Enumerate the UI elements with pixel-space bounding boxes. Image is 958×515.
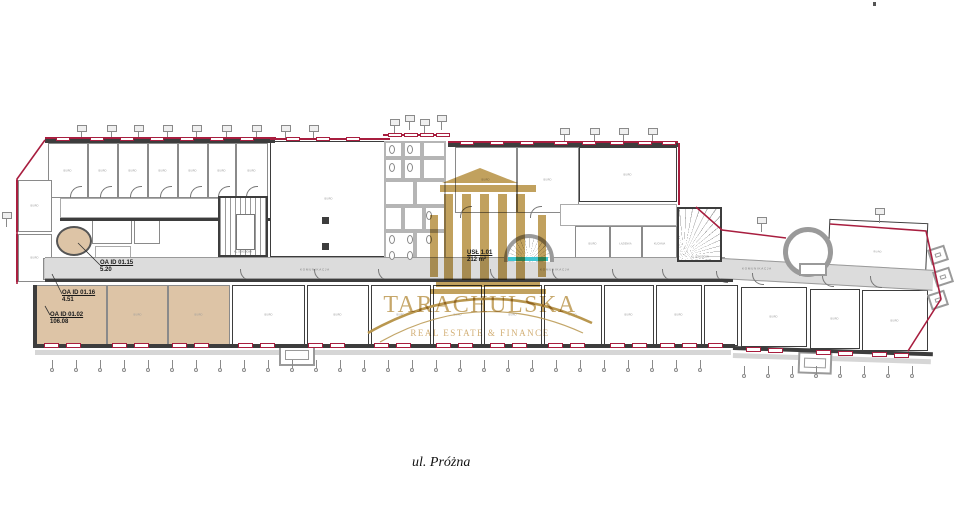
dimension-tick	[148, 360, 149, 368]
dimension-flag	[252, 125, 262, 132]
window-opening	[374, 343, 389, 348]
window-opening	[632, 343, 647, 348]
staircase-left: KL. SCHODOWA	[218, 196, 268, 257]
dimension-tick	[436, 360, 437, 368]
room: BIURO	[604, 285, 654, 345]
dimension-tick	[388, 360, 389, 368]
toilet-fixture	[389, 145, 395, 154]
dimension-flag	[107, 125, 117, 132]
dimension-tick	[340, 360, 341, 368]
room	[403, 206, 424, 231]
room: BIURO	[544, 285, 602, 345]
room: BIURO	[484, 285, 542, 345]
bay-window-inner	[935, 297, 942, 303]
annotation-id: OA ID 01.16	[62, 290, 95, 297]
bay-window-inner	[804, 358, 826, 369]
window-opening	[436, 343, 451, 348]
stair-landing	[236, 214, 255, 250]
toilet-fixture	[389, 251, 395, 260]
dimension-tick	[220, 360, 221, 368]
dimension-tick	[700, 360, 701, 368]
area-annotation: OA ID 01.164.51	[62, 290, 95, 304]
toilet-fixture	[407, 235, 413, 244]
dimension-tick	[628, 360, 629, 368]
dimension-tick	[556, 360, 557, 368]
dimension-tick	[364, 360, 365, 368]
room	[384, 180, 415, 206]
room	[384, 206, 403, 231]
dimension-flag	[222, 125, 232, 132]
window-opening	[286, 137, 300, 141]
window-opening	[44, 343, 59, 348]
room: BIURO	[656, 285, 702, 345]
room: BIURO	[168, 285, 230, 345]
room-label: BIURO	[891, 319, 899, 322]
window-opening	[610, 141, 624, 145]
room: BIURO	[48, 143, 88, 198]
window-opening	[520, 141, 534, 145]
dimension-tick	[580, 360, 581, 368]
bay-window	[927, 245, 949, 266]
window-opening	[872, 352, 887, 357]
dimension-flag	[757, 217, 767, 224]
room: BIURO	[433, 285, 482, 345]
window-opening	[894, 353, 909, 358]
annotation-id: OA ID 01.15	[100, 260, 133, 267]
room-label: BIURO	[453, 314, 461, 317]
window-opening	[746, 347, 761, 352]
room-label: KUCHNIA	[654, 243, 665, 246]
street-label: ul. Próżna	[412, 455, 470, 471]
window-opening	[610, 343, 625, 348]
window-opening	[120, 137, 134, 141]
area-annotation: USŁ 1.01212 m²	[467, 250, 492, 264]
dimension-tick	[676, 360, 677, 368]
annotation-id: USŁ 1.01	[467, 250, 492, 257]
annotation-area: 5.20	[100, 267, 133, 274]
room-label: BIURO	[334, 314, 342, 317]
window-opening	[316, 137, 330, 141]
window-opening	[112, 343, 127, 348]
toilet-fixture	[426, 235, 432, 244]
dimension-tick	[124, 360, 125, 368]
toilet-fixture	[426, 211, 432, 220]
room-label: BIURO	[397, 314, 405, 317]
structural-column	[322, 243, 329, 250]
window-opening	[150, 137, 164, 141]
room-label: BIURO	[99, 169, 107, 172]
room-label: BIURO	[831, 318, 839, 321]
room: BIURO	[741, 287, 807, 347]
window-opening	[308, 343, 323, 348]
room	[92, 218, 132, 244]
dimension-tick	[816, 366, 817, 374]
room-label: BIURO	[64, 169, 72, 172]
room-label: ŁAZIENKA	[620, 243, 632, 246]
annotation-area: 212 m²	[467, 257, 492, 264]
window-opening	[66, 343, 81, 348]
window-opening	[172, 343, 187, 348]
room: BIURO	[18, 180, 52, 232]
dimension-flag	[405, 115, 415, 122]
room-label: BIURO	[264, 314, 272, 317]
dimension-flag	[77, 125, 87, 132]
dimension-tick	[100, 360, 101, 368]
window-opening	[660, 343, 675, 348]
window-opening	[330, 343, 345, 348]
dimension-tick	[76, 360, 77, 368]
window-opening	[682, 343, 697, 348]
corridor-label: KOMUNIKACJA	[300, 269, 330, 272]
wall-left-edge	[33, 285, 37, 345]
room: BIURO	[107, 285, 168, 345]
room: BIURO	[862, 290, 928, 351]
room-label: BIURO	[770, 316, 778, 319]
dimension-tick	[292, 360, 293, 368]
dimension-flag	[590, 128, 600, 135]
bay-window	[932, 267, 954, 288]
dimension-tick	[532, 360, 533, 368]
window-opening	[210, 137, 224, 141]
window-opening	[240, 137, 254, 141]
window-opening	[134, 343, 149, 348]
window-opening	[554, 141, 568, 145]
room-label: BIURO	[625, 314, 633, 317]
oval-room	[56, 226, 92, 256]
toilet-fixture	[407, 251, 413, 260]
window-opening	[512, 343, 527, 348]
dimension-tick	[888, 366, 889, 374]
dimension-flag	[420, 119, 430, 126]
room-label: BIURO	[218, 169, 226, 172]
window-opening	[662, 141, 676, 145]
room-label: BIURO	[31, 205, 39, 208]
window-opening	[570, 343, 585, 348]
room: BIURO	[270, 141, 388, 257]
bay-window-inner	[940, 274, 947, 280]
dimension-flag	[2, 212, 12, 219]
window-opening	[238, 343, 253, 348]
toilet-fixture	[407, 163, 413, 172]
dimension-tick	[840, 366, 841, 374]
toilet-fixture	[407, 145, 413, 154]
room	[704, 285, 738, 346]
dimension-tick	[196, 360, 197, 368]
window-opening	[768, 348, 783, 353]
dimension-tick	[268, 360, 269, 368]
room-label: BIURO	[129, 169, 137, 172]
room: BIURO	[810, 289, 860, 349]
teal-strip	[508, 257, 548, 261]
bay-window	[927, 290, 949, 311]
dimension-tick	[768, 366, 769, 374]
room-label: BIURO	[31, 257, 39, 260]
staircase-right: KL. SCHODOWA	[677, 207, 722, 262]
room-label: BIURO	[873, 251, 881, 254]
floor-plan: KL. SCHODOWA KL. SCHODOWA BIUROBIUROBIUR…	[0, 0, 958, 515]
bay-window-inner	[285, 350, 309, 360]
room-label: BIURO	[624, 173, 632, 176]
dimension-flag	[560, 128, 570, 135]
dimension-flag	[437, 115, 447, 122]
room	[422, 158, 446, 180]
dimension-tick	[52, 360, 53, 368]
structural-column	[322, 217, 329, 224]
dimension-tick	[316, 360, 317, 368]
window-opening	[420, 133, 434, 137]
window-opening	[56, 137, 70, 141]
room-label: BIURO	[569, 314, 577, 317]
room-label: BIURO	[509, 314, 517, 317]
window-opening	[638, 141, 652, 145]
window-opening	[838, 351, 853, 356]
room-label: BIURO	[675, 314, 683, 317]
area-annotation: OA ID 01.155.20	[100, 260, 133, 274]
dimension-tick	[604, 360, 605, 368]
room: BIURO	[232, 285, 305, 345]
toilet-fixture	[389, 235, 395, 244]
room	[422, 141, 446, 158]
window-opening	[404, 133, 418, 137]
door-arc	[822, 275, 834, 287]
window-opening	[816, 350, 831, 355]
annotation-id: OA ID 01.02	[50, 312, 83, 319]
hearth	[799, 263, 827, 276]
window-opening	[548, 343, 563, 348]
window-opening	[180, 137, 194, 141]
dimension-flag	[134, 125, 144, 132]
sill-band	[35, 350, 731, 355]
room: BIURO	[579, 147, 677, 202]
room	[415, 180, 446, 206]
dimension-tick	[864, 366, 865, 374]
stair-label: KL. SCHODOWA	[234, 251, 252, 253]
dimension-flag	[281, 125, 291, 132]
window-opening	[346, 137, 360, 141]
room	[134, 218, 160, 244]
dimension-flag	[192, 125, 202, 132]
dimension-tick	[652, 360, 653, 368]
wall-corridor-south	[45, 279, 733, 282]
door-arc	[752, 273, 764, 285]
window-opening	[260, 343, 275, 348]
room-label: BIURO	[195, 314, 203, 317]
toilet-fixture	[389, 163, 395, 172]
area-annotation: OA ID 01.02106.08	[50, 312, 83, 326]
dimension-flag	[390, 119, 400, 126]
room-label: BIURO	[133, 314, 141, 317]
room-label: BIURO	[544, 179, 552, 182]
dimension-flag	[875, 208, 885, 215]
window-opening	[396, 343, 411, 348]
dimension-tick	[912, 366, 913, 374]
dimension-tick	[244, 360, 245, 368]
dimension-tick	[460, 360, 461, 368]
dimension-flag	[309, 125, 319, 132]
annotation-area: 4.51	[62, 297, 95, 304]
room-label: BIURO	[189, 169, 197, 172]
facade-line-east	[678, 143, 680, 205]
room: BIURO	[455, 147, 517, 213]
window-opening	[194, 343, 209, 348]
room-label: BIURO	[588, 243, 596, 246]
dimension-tick	[172, 360, 173, 368]
dimension-tick	[508, 360, 509, 368]
dimension-flag	[163, 125, 173, 132]
window-opening	[388, 133, 402, 137]
window-opening	[490, 141, 504, 145]
dimension-flag	[648, 128, 658, 135]
room	[560, 204, 677, 226]
dimension-tick	[744, 366, 745, 374]
window-opening	[458, 343, 473, 348]
annotation-area: 106.08	[50, 319, 83, 326]
room: BIURO	[307, 285, 369, 345]
window-opening	[436, 133, 450, 137]
room-label: BIURO	[482, 179, 490, 182]
bay-window-inner	[935, 252, 942, 258]
room-label: BIURO	[159, 169, 167, 172]
window-opening	[582, 141, 596, 145]
dimension-tick	[412, 360, 413, 368]
window-opening	[708, 343, 723, 348]
stair-label: KL. SCHODOWA	[691, 256, 709, 258]
room: BIURO	[371, 285, 431, 345]
window-opening	[460, 141, 474, 145]
window-opening	[490, 343, 505, 348]
round-tower-room	[783, 227, 833, 277]
window-opening	[90, 137, 104, 141]
room-label: BIURO	[248, 169, 256, 172]
corridor-label: KOMUNIKACJA	[742, 268, 772, 271]
stray-mark	[873, 2, 876, 6]
dimension-flag	[619, 128, 629, 135]
dimension-tick	[484, 360, 485, 368]
room-label: BIURO	[325, 198, 333, 201]
dimension-tick	[792, 366, 793, 374]
corridor-label: KOMUNIKACJA	[540, 269, 570, 272]
